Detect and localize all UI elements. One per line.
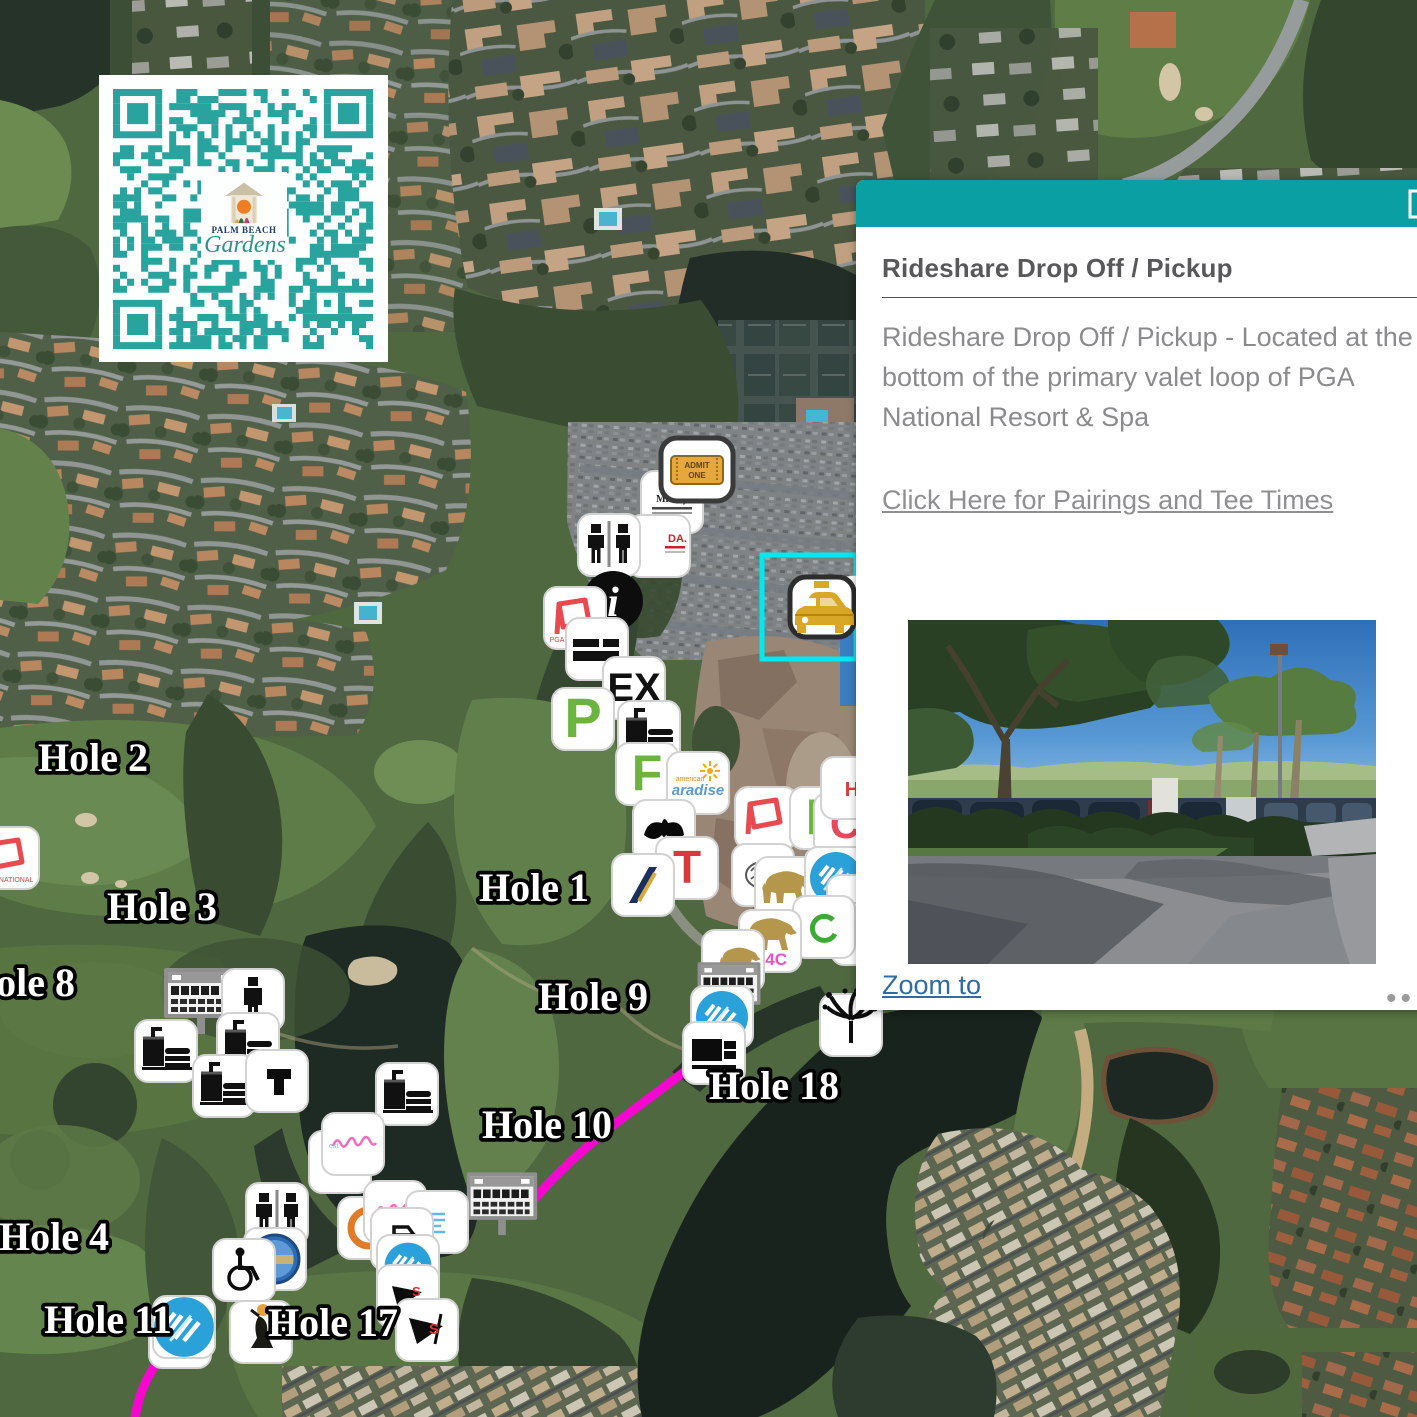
svg-text:Hole 4: Hole 4	[0, 1214, 109, 1259]
svg-text:Hole 1: Hole 1	[479, 865, 589, 910]
svg-text:Hole 3: Hole 3	[107, 884, 217, 929]
svg-text:Hole 8: Hole 8	[0, 960, 75, 1005]
svg-text:Hole 17: Hole 17	[268, 1300, 398, 1345]
svg-text:Hole 10: Hole 10	[482, 1102, 612, 1147]
svg-text:Hole 18: Hole 18	[709, 1063, 839, 1108]
svg-text:Hole 9: Hole 9	[538, 974, 648, 1019]
svg-text:Hole 2: Hole 2	[38, 735, 148, 780]
svg-text:Hole 11: Hole 11	[44, 1297, 172, 1342]
